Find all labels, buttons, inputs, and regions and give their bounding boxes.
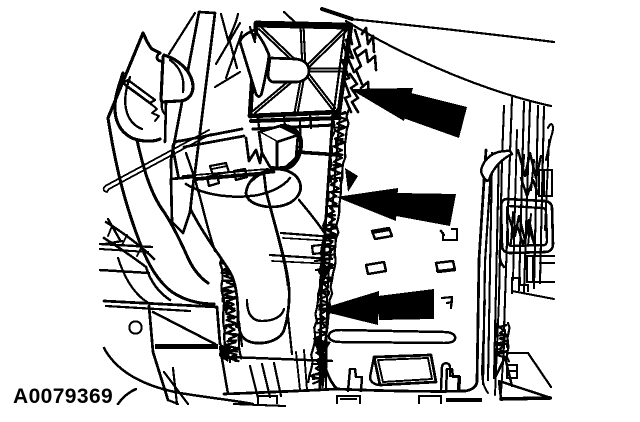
svg-text:A0079369: A0079369	[13, 385, 113, 408]
